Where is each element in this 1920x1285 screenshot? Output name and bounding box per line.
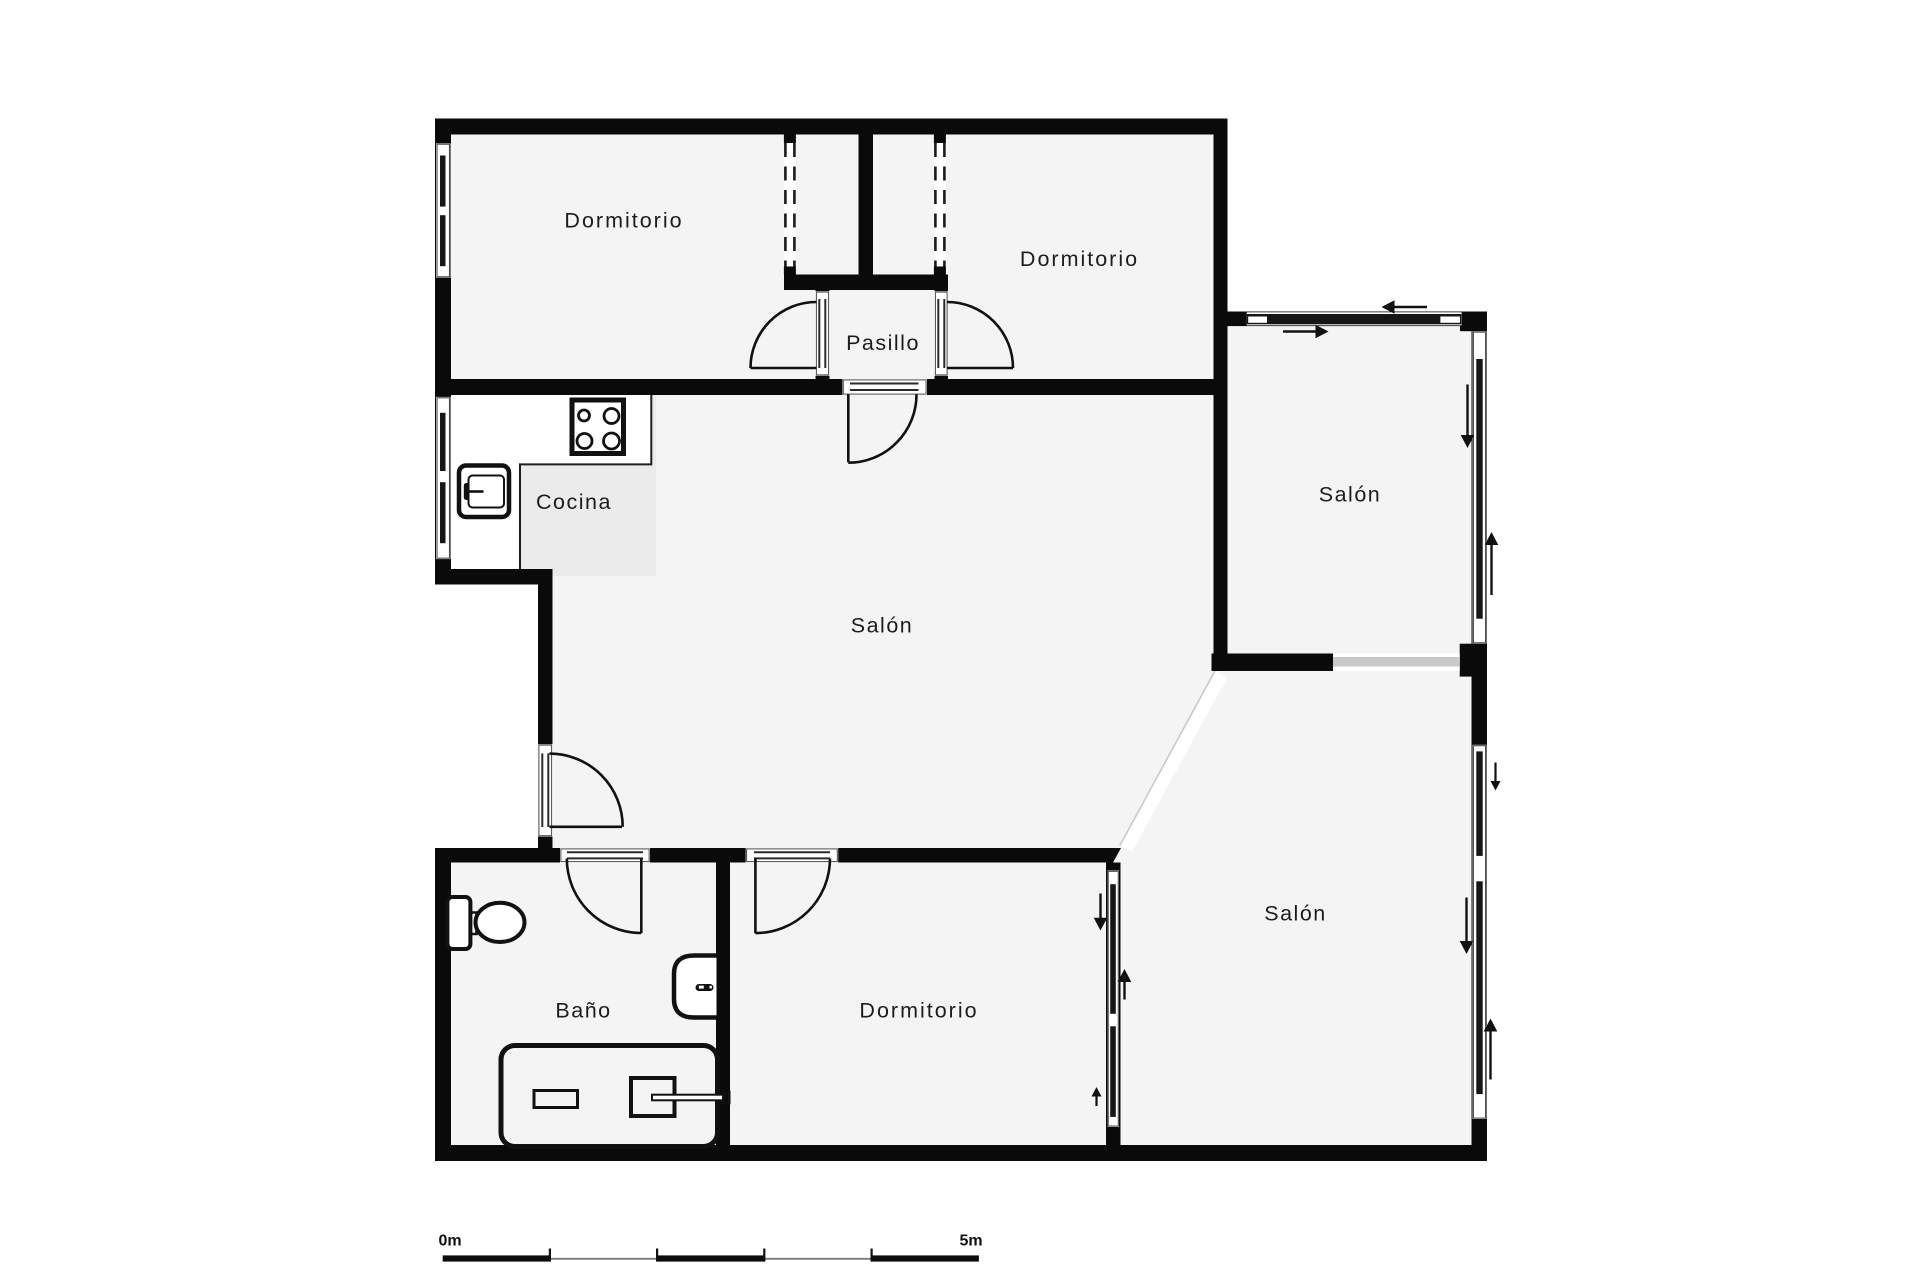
svg-text:Cocina: Cocina: [536, 490, 612, 514]
svg-text:Salón: Salón: [1264, 902, 1327, 926]
svg-text:Dormitorio: Dormitorio: [1020, 247, 1139, 271]
svg-text:Pasillo: Pasillo: [846, 331, 920, 355]
svg-text:Salón: Salón: [851, 614, 914, 638]
svg-text:Salón: Salón: [1319, 483, 1382, 507]
svg-text:0m: 0m: [438, 1233, 461, 1250]
svg-text:Dormitorio: Dormitorio: [859, 999, 978, 1023]
svg-text:5m: 5m: [959, 1233, 982, 1250]
svg-text:Dormitorio: Dormitorio: [564, 208, 683, 232]
svg-text:Baño: Baño: [555, 999, 611, 1023]
